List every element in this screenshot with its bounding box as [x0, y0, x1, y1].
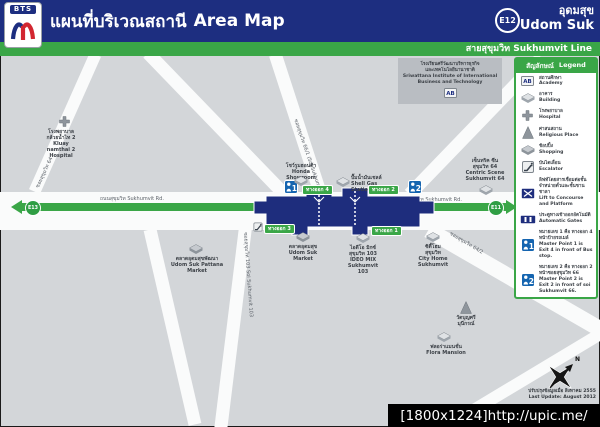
gates-icon	[519, 215, 536, 224]
exit-4-label: ทางออก 4	[302, 185, 333, 195]
poi-kluay-namthai-2-hospital: โรงพยาบาล กล้วยน้ำไท 2 Kluay namthai 2 H…	[32, 129, 90, 159]
station-badge-e11: E11	[488, 200, 504, 216]
escalator-icon	[519, 161, 536, 173]
master-point-2-icon: 2	[519, 273, 536, 287]
legend-item: ช้อปปิ้งShopping	[516, 142, 596, 159]
religious-icon	[519, 126, 536, 139]
legend-title: สัญลักษณ์ Legend	[516, 59, 596, 73]
last-update: ปรับปรุงข้อมูลเมื่อ สิงหาคม 2555 Last Up…	[518, 389, 596, 401]
poi-city-home: ซิตี้โฮม สุขุมวิท City Home Sukhumvit	[412, 244, 454, 268]
legend-item-label: ศาสนสถานReligious Place	[539, 127, 578, 139]
shopping-icon	[519, 145, 536, 156]
bts-logo-icon	[9, 14, 37, 42]
watermark: [1800x1224]http://upic.me/	[388, 404, 600, 427]
escalator-icon	[254, 223, 263, 232]
area-map-page: BTS แผนที่บริเวณสถานี Area Map E12 อุดมส…	[0, 0, 600, 427]
legend-item-label: ประตูทางเข้าออกอัตโนมัติAutomatic Gates	[539, 213, 591, 225]
poi-ideo-mix: ไอดีโอ มิกซ์ สุขุมวิท 103 IDEO MIX Sukhu…	[342, 245, 384, 275]
legend-item: บันไดเลื่อนEscalator	[516, 159, 596, 176]
legend-item-label: สถานศึกษาAcademy	[539, 76, 563, 88]
legend-item: ABสถานศึกษาAcademy	[516, 73, 596, 90]
religious-icon	[460, 301, 472, 314]
building-icon	[336, 177, 350, 188]
road-label-sukhumvit-west: ถนนสุขุมวิท Sukhumvit Rd.	[100, 195, 164, 203]
legend-item-label: ช้อปปิ้งShopping	[539, 144, 563, 156]
svg-text:2: 2	[416, 184, 421, 193]
hospital-icon	[59, 116, 70, 127]
page-title-en: Area Map	[194, 11, 285, 31]
station-name-en: Udom Suk	[520, 18, 594, 34]
poi-temple: วัดบุญศรี มุนีกรณ์	[449, 315, 483, 327]
legend-item: ลิฟท์โดยสารเชื่อมต่อชั้นจำหน่ายตั๋วและชั…	[516, 176, 596, 211]
hospital-icon	[519, 110, 536, 121]
station-badge-e13: E13	[25, 200, 41, 216]
building-icon	[437, 332, 451, 343]
legend-item-label: อาคารBuilding	[539, 92, 560, 104]
legend-item: อาคารBuilding	[516, 90, 596, 107]
bts-logo: BTS	[4, 2, 42, 48]
building-icon	[356, 233, 370, 244]
bts-logo-text: BTS	[10, 5, 36, 14]
shopping-icon	[296, 232, 310, 243]
legend-item: โรงพยาบาลHospital	[516, 107, 596, 124]
road-label-soi-103: ซอยสุขุมวิท 103 Soi Sukhumvit 103	[241, 232, 255, 317]
station-name: อุดมสุข Udom Suk	[520, 4, 594, 34]
exit-2-label: ทางออก 2	[368, 185, 399, 195]
legend-item-label: หมายเลข 1 คือ ทางออก 4 หน้าป้ายรถเมล์Mas…	[539, 230, 593, 260]
legend-item-label: ลิฟท์โดยสารเชื่อมต่อชั้นจำหน่ายตั๋วและชั…	[539, 178, 593, 208]
legend-item-label: โรงพยาบาลHospital	[539, 109, 563, 121]
legend-item: 2หมายเลข 2 คือ ทางออก 2 หน้าซอยสุขุมวิท …	[516, 262, 596, 297]
svg-text:AB: AB	[523, 79, 531, 85]
master-point-2-icon: 2	[408, 180, 422, 194]
road-diagonal-nw	[143, 56, 291, 201]
poi-udom-suk-market: ตลาดอุดมสุข Udom Suk Market	[281, 244, 325, 262]
page-title: แผนที่บริเวณสถานี Area Map	[50, 0, 285, 42]
map-canvas: E13 E11 1 ทางออก 4 ทางออก 2 2 ทางออก 3 ท…	[0, 56, 600, 427]
shopping-icon	[189, 244, 203, 255]
building-icon	[519, 93, 536, 104]
svg-text:2: 2	[528, 277, 533, 286]
legend-item-label: หมายเลข 2 คือ ทางออก 2 หน้าซอยสุขุมวิท 6…	[539, 265, 593, 295]
station-code-badge: E12	[495, 8, 520, 33]
svg-text:AB: AB	[446, 91, 454, 97]
exit-3-label: ทางออก 3	[264, 224, 295, 234]
compass-n-label: N	[575, 356, 580, 363]
building-icon	[479, 185, 493, 196]
page-title-th: แผนที่บริเวณสถานี	[50, 8, 187, 35]
line-arrow-west-icon	[11, 200, 22, 214]
master-point-1-icon: 1	[519, 238, 536, 252]
exit-1-label: ทางออก 1	[371, 226, 402, 236]
line-bar: สายสุขุมวิท Sukhumvit Line	[0, 42, 600, 56]
station-name-th: อุดมสุข	[520, 4, 594, 18]
svg-text:1: 1	[528, 242, 533, 251]
building-icon	[426, 232, 440, 243]
legend-panel: สัญลักษณ์ Legend ABสถานศึกษาAcademyอาคาร…	[514, 57, 598, 299]
poi-sriwattana-school: โรงเรียนศรีวัฒนาบริหารธุรกิจ และเทคโนโลย…	[398, 58, 502, 104]
legend-item: ศาสนสถานReligious Place	[516, 124, 596, 142]
legend-item-label: บันไดเลื่อนEscalator	[539, 161, 563, 173]
poi-centric-scene: เซ็นทริค ซีน สุขุมวิท 64 Centric Scene S…	[462, 158, 508, 182]
legend-item: ประตูทางเข้าออกอัตโนมัติAutomatic Gates	[516, 211, 596, 228]
academy-icon: AB	[444, 88, 457, 98]
lift-icon	[519, 188, 536, 199]
poi-udom-suk-pattana-market: ตลาดอุดมสุขพัฒนา Udom Suk Pattana Market	[165, 256, 229, 274]
legend-item: 1หมายเลข 1 คือ ทางออก 4 หน้าป้ายรถเมล์Ma…	[516, 228, 596, 263]
academy-icon: AB	[519, 76, 536, 86]
line-name: สายสุขุมวิท Sukhumvit Line	[466, 44, 592, 54]
poi-flora-mansion: ฟลอร่าแมนชั่น Flora Mansion	[422, 344, 470, 356]
